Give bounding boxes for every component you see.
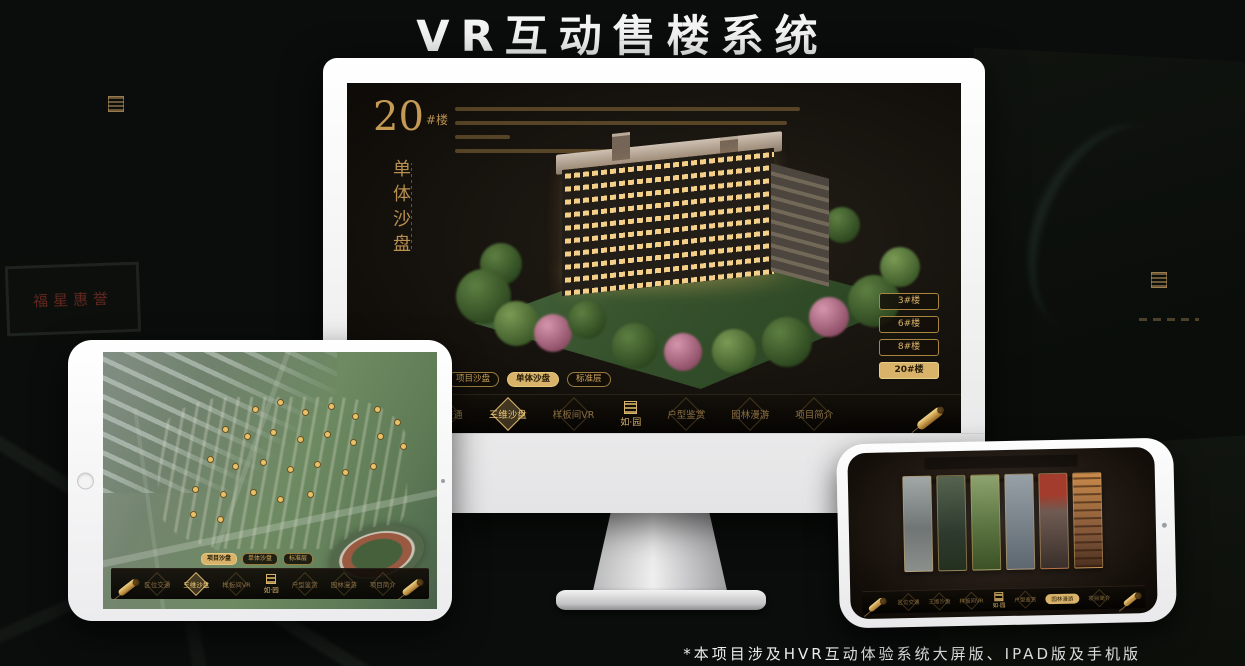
tree	[534, 314, 572, 352]
promo-page: 福星惠誉 VR互动售楼系统 20#楼 单体沙盘	[0, 0, 1245, 666]
tree	[712, 329, 756, 373]
building-badge[interactable]	[303, 410, 308, 415]
building-badge[interactable]	[221, 492, 226, 497]
building-badge[interactable]	[278, 400, 283, 405]
background-seal-icon	[1151, 272, 1167, 288]
building-badge[interactable]	[288, 467, 293, 472]
tree	[664, 333, 702, 371]
subtab-project-sandbox[interactable]: 项目沙盘	[447, 372, 499, 387]
scroll-menu-icon[interactable]	[117, 578, 139, 597]
subtab-standard-floor[interactable]: 标准层	[567, 372, 611, 387]
monitor-stand-foot	[556, 590, 766, 610]
floor-button-20[interactable]: 20#楼	[879, 362, 939, 379]
gallery-panel-autumn[interactable]	[1038, 473, 1069, 570]
building-badge[interactable]	[271, 430, 276, 435]
tablet-nav-3d-sandbox[interactable]: 三维沙盘	[183, 579, 209, 589]
scroll-menu-icon[interactable]	[868, 597, 886, 613]
tablet-camera-icon	[441, 479, 445, 483]
background-map-collage	[954, 47, 1245, 462]
phone-nav-location[interactable]: 区位交通	[897, 598, 919, 606]
building-badge[interactable]	[343, 470, 348, 475]
nav-item-project-intro[interactable]: 项目简介	[795, 407, 833, 421]
brand-logo: 如·园	[620, 401, 641, 428]
floor-selector: 3#楼 6#楼 8#楼 20#楼	[879, 293, 939, 379]
building-badge[interactable]	[278, 497, 283, 502]
building-number: 20	[373, 94, 424, 140]
phone-brand-logo: 如·园	[992, 592, 1005, 609]
sandbox-subtabs: 项目沙盘 单体沙盘 标准层	[447, 372, 611, 387]
scene-gallery	[902, 472, 1103, 572]
tree	[568, 301, 606, 339]
phone-navbar: 区位交通 三维沙盘 样板间VR 如·园 户型鉴赏 园林漫游 项目简介	[862, 585, 1145, 614]
gallery-panel-night-garden[interactable]	[936, 475, 967, 572]
building-badge[interactable]	[371, 464, 376, 469]
tree	[880, 247, 920, 287]
gallery-panel-interior[interactable]	[1072, 472, 1103, 569]
background-seal-icon	[108, 96, 124, 112]
interior-archway	[924, 454, 1078, 469]
building-facade	[562, 148, 774, 296]
phone-nav-unit-plans[interactable]: 户型鉴赏	[1014, 595, 1036, 603]
building-badge[interactable]	[325, 432, 330, 437]
tablet-screen: 项目沙盘 单体沙盘 标准层 区位交通 三维沙盘 样板间VR 如·园 户型鉴赏 园…	[103, 352, 437, 609]
tablet-nav-location[interactable]: 区位交通	[144, 579, 170, 589]
phone-nav-garden-tour[interactable]: 园林漫游	[1045, 593, 1079, 604]
tree	[494, 301, 539, 346]
footnote-text: *本项目涉及HVR互动体验系统大屏版、IPAD版及手机版	[683, 643, 1141, 664]
tree	[762, 317, 812, 367]
building-badge[interactable]	[308, 492, 313, 497]
building-badge[interactable]	[315, 462, 320, 467]
building-badge[interactable]	[395, 420, 400, 425]
phone-device: 区位交通 三维沙盘 样板间VR 如·园 户型鉴赏 园林漫游 项目简介	[836, 437, 1177, 628]
gallery-panel-courtyard[interactable]	[902, 476, 933, 573]
tablet-nav-project-intro[interactable]: 项目简介	[370, 579, 396, 589]
building-badge[interactable]	[223, 427, 228, 432]
tablet-nav-garden-tour[interactable]: 园林漫游	[331, 579, 357, 589]
building-badge[interactable]	[351, 440, 356, 445]
tablet-home-button	[77, 472, 94, 489]
scroll-menu-icon[interactable]	[401, 578, 423, 597]
tablet-subtab-standard-floor[interactable]: 标准层	[283, 553, 313, 565]
building-badge[interactable]	[378, 434, 383, 439]
gallery-panel-landscape[interactable]	[970, 474, 1001, 571]
building-badge[interactable]	[298, 437, 303, 442]
gallery-panel-building[interactable]	[1004, 473, 1035, 570]
monitor-stand-neck	[592, 511, 728, 595]
phone-nav-3d-sandbox[interactable]: 三维沙盘	[928, 597, 950, 605]
tablet-nav-unit-plans[interactable]: 户型鉴赏	[292, 579, 318, 589]
nav-item-unit-plans[interactable]: 户型鉴赏	[667, 407, 705, 421]
building-badge[interactable]	[375, 407, 380, 412]
brand-logo-text: 如·园	[993, 601, 1006, 609]
brand-seal-icon	[266, 574, 276, 584]
background-sign-text: 福星惠誉	[33, 287, 114, 311]
tablet-subtab-single-sandbox[interactable]: 单体沙盘	[242, 553, 278, 565]
brand-seal-icon	[624, 401, 637, 414]
nav-item-showroom-vr[interactable]: 样板间VR	[553, 407, 595, 421]
building-badge[interactable]	[245, 434, 250, 439]
tree	[824, 207, 860, 243]
building-badge[interactable]	[193, 487, 198, 492]
nav-item-3d-sandbox[interactable]: 三维沙盘	[489, 407, 527, 421]
building-badge[interactable]	[191, 512, 196, 517]
tree	[612, 323, 658, 369]
tablet-device: 项目沙盘 单体沙盘 标准层 区位交通 三维沙盘 样板间VR 如·园 户型鉴赏 园…	[68, 340, 452, 621]
roof-dormer	[612, 132, 630, 161]
building-badge[interactable]	[233, 464, 238, 469]
brand-seal-icon	[994, 592, 1003, 601]
background-river-line	[997, 99, 1224, 361]
brand-logo-text: 如·园	[264, 584, 279, 594]
tablet-navbar: 区位交通 三维沙盘 样板间VR 如·园 户型鉴赏 园林漫游 项目简介	[111, 568, 429, 599]
building-badge[interactable]	[218, 517, 223, 522]
building-badge[interactable]	[253, 407, 258, 412]
phone-nav-showroom-vr[interactable]: 样板间VR	[959, 596, 983, 605]
phone-nav-project-intro[interactable]: 项目简介	[1088, 594, 1110, 602]
floor-button-6[interactable]: 6#楼	[879, 316, 939, 333]
heading-rule	[411, 163, 412, 249]
tablet-nav-showroom-vr[interactable]: 样板间VR	[222, 579, 250, 589]
building-number-suffix: #楼	[426, 113, 448, 127]
building-side	[771, 163, 829, 287]
building-badge[interactable]	[329, 404, 334, 409]
floor-button-8[interactable]: 8#楼	[879, 339, 939, 356]
building-badge[interactable]	[401, 444, 406, 449]
screen-title-vertical: 单体沙盘	[387, 159, 413, 259]
phone-camera-icon	[1162, 522, 1167, 527]
tablet-sandbox-subtabs: 项目沙盘 单体沙盘 标准层	[201, 553, 313, 565]
building-badge[interactable]	[261, 460, 266, 465]
tree	[809, 297, 849, 337]
page-title: VR互动售楼系统	[0, 2, 1245, 64]
brand-logo-text: 如·园	[620, 415, 641, 428]
screen-heading: 20#楼	[373, 97, 448, 137]
building-badge[interactable]	[353, 414, 358, 419]
subtab-single-sandbox[interactable]: 单体沙盘	[507, 372, 559, 387]
building-badge[interactable]	[251, 490, 256, 495]
floor-button-3[interactable]: 3#楼	[879, 293, 939, 310]
tablet-subtab-project-sandbox[interactable]: 项目沙盘	[201, 553, 237, 565]
nav-item-garden-tour[interactable]: 园林漫游	[731, 407, 769, 421]
scroll-menu-icon[interactable]	[1123, 591, 1141, 607]
background-sign-frame: 福星惠誉	[5, 262, 141, 337]
phone-screen: 区位交通 三维沙盘 样板间VR 如·园 户型鉴赏 园林漫游 项目简介	[847, 447, 1157, 619]
building-model-3d[interactable]	[462, 151, 932, 389]
building-badge[interactable]	[208, 457, 213, 462]
background-text-dashes	[1139, 318, 1199, 321]
scroll-menu-icon[interactable]	[915, 406, 944, 432]
tablet-brand-logo: 如·园	[264, 574, 279, 594]
